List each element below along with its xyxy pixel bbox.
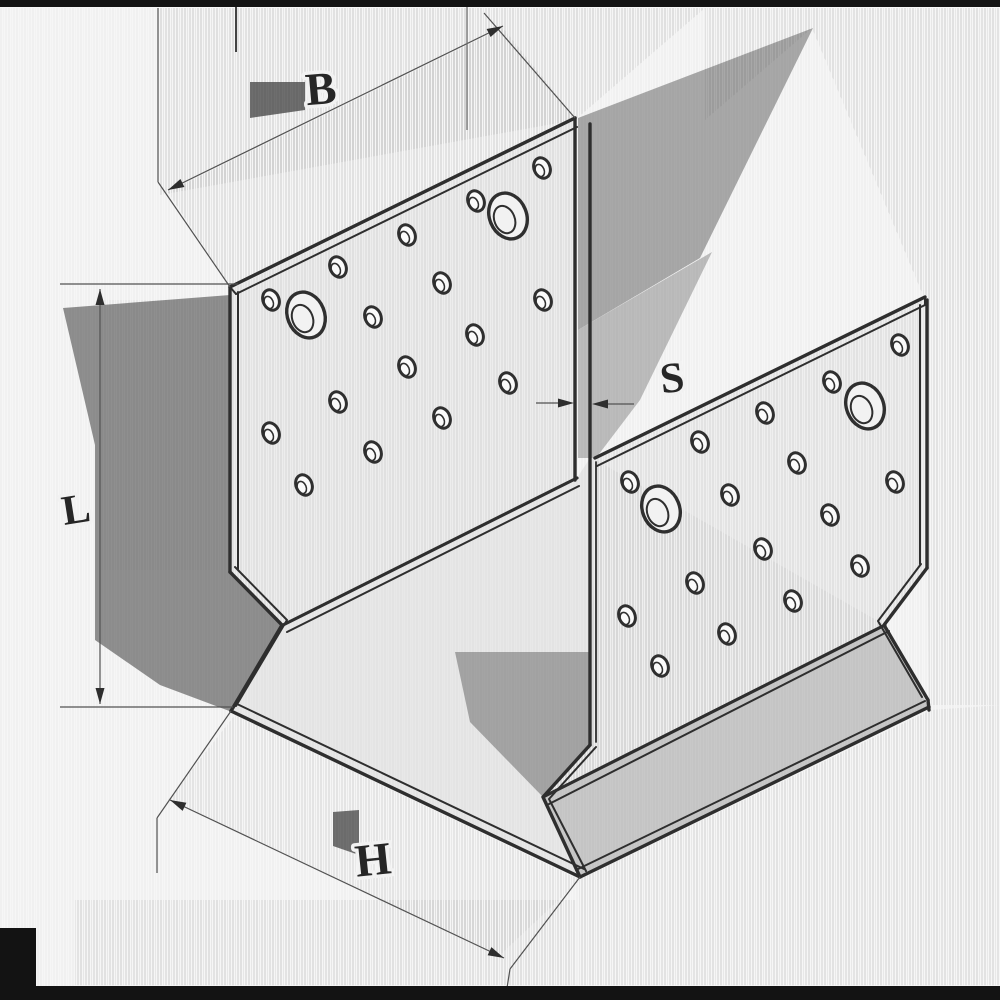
technical-drawing-canvas: B S L H bbox=[0, 0, 1000, 1000]
bottom-left-block bbox=[0, 928, 36, 1000]
top-bar bbox=[0, 0, 1000, 7]
angle-connector-diagram: B S L H bbox=[0, 0, 1000, 1000]
label-h: H bbox=[352, 832, 393, 886]
bottom-bar bbox=[0, 986, 1000, 1000]
label-b: B bbox=[303, 62, 338, 115]
